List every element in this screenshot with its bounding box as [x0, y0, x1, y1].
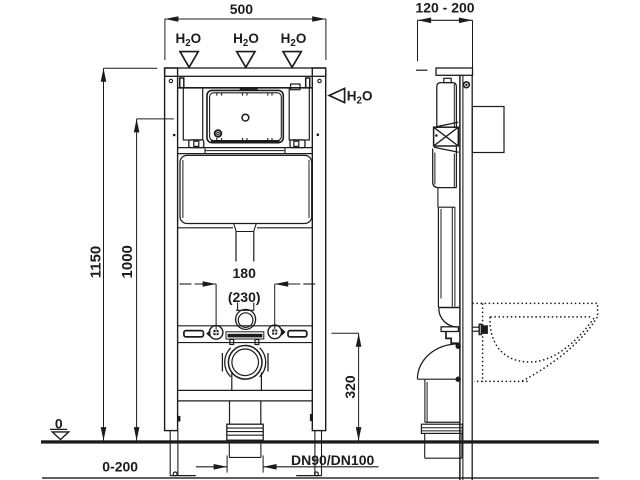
svg-text:(230): (230) — [228, 289, 261, 305]
svg-text:500: 500 — [230, 1, 254, 17]
svg-text:320: 320 — [342, 375, 358, 399]
svg-text:1150: 1150 — [88, 246, 105, 279]
svg-text:180: 180 — [233, 265, 257, 281]
svg-text:1000: 1000 — [119, 245, 136, 278]
svg-text:120 - 200: 120 - 200 — [415, 0, 474, 16]
svg-text:0-200: 0-200 — [102, 459, 138, 475]
svg-text:DN90/DN100: DN90/DN100 — [291, 452, 374, 468]
